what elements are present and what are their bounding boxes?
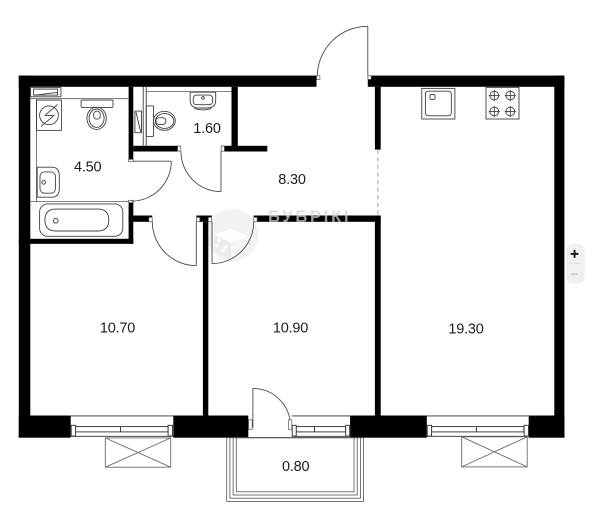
svg-text:10.70: 10.70 — [100, 320, 135, 336]
svg-text:19.30: 19.30 — [448, 321, 483, 337]
svg-text:1.60: 1.60 — [193, 121, 221, 137]
svg-text:0.80: 0.80 — [282, 459, 310, 475]
svg-text:8.30: 8.30 — [278, 172, 306, 188]
svg-text:4.50: 4.50 — [74, 159, 102, 175]
svg-text:10.90: 10.90 — [273, 320, 308, 336]
